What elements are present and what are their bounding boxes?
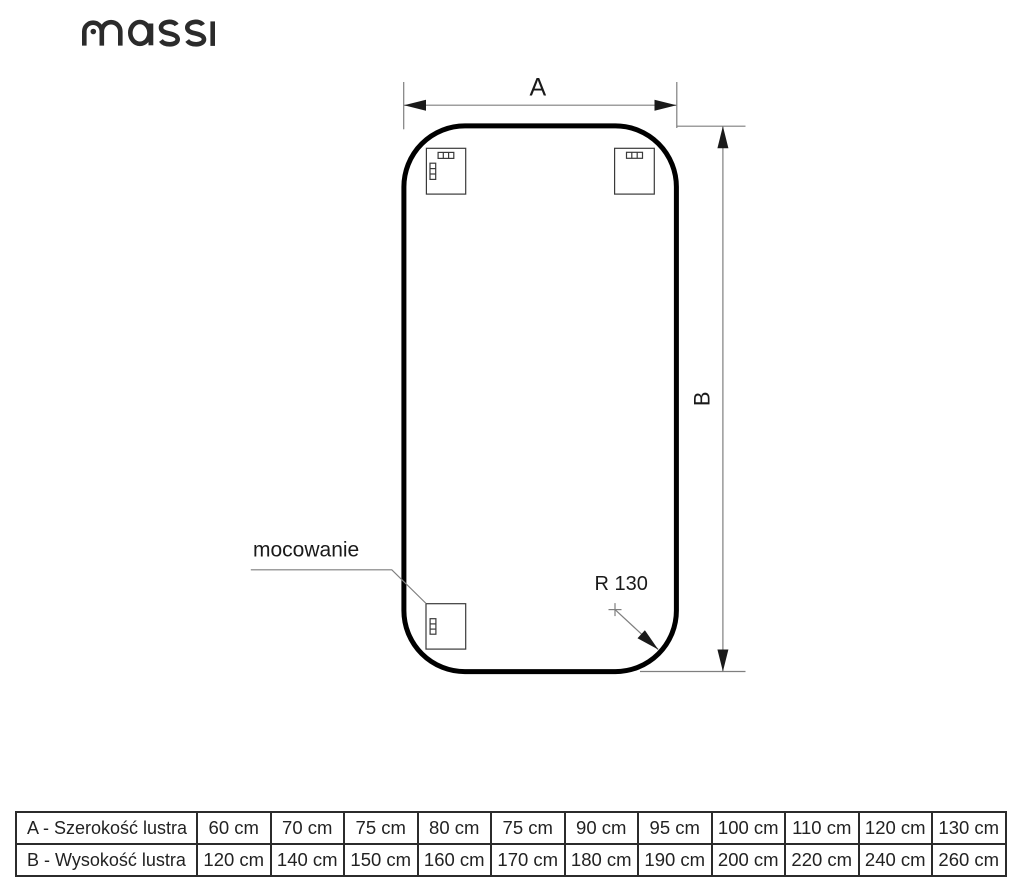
svg-text:mocowanie: mocowanie xyxy=(253,538,359,561)
svg-text:R 130: R 130 xyxy=(595,573,648,595)
svg-text:A: A xyxy=(529,74,546,102)
svg-text:B: B xyxy=(690,391,715,406)
